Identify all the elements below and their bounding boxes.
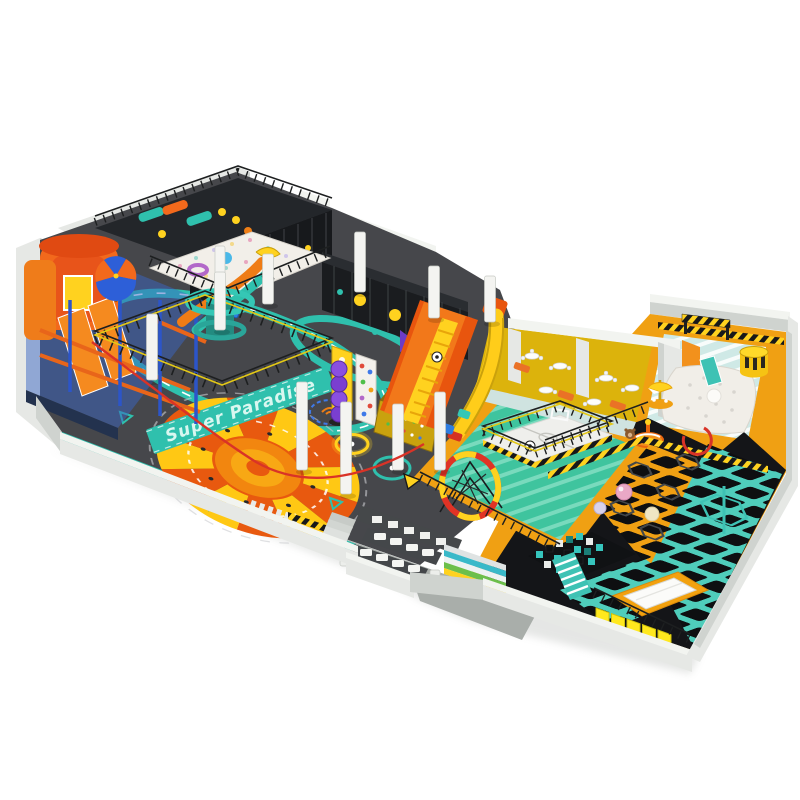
inflatable-screen bbox=[64, 276, 92, 310]
inflatable-canopy bbox=[39, 234, 119, 258]
cafe-wall-mid bbox=[576, 338, 589, 398]
cafe-wall-left bbox=[508, 328, 521, 384]
toddler-drum-ride bbox=[740, 347, 768, 378]
toddler-big-ball bbox=[707, 389, 721, 403]
playground-render: Indoor Playground Park — 3D Isometric Re… bbox=[0, 0, 800, 800]
inflatable-tower bbox=[24, 260, 56, 340]
